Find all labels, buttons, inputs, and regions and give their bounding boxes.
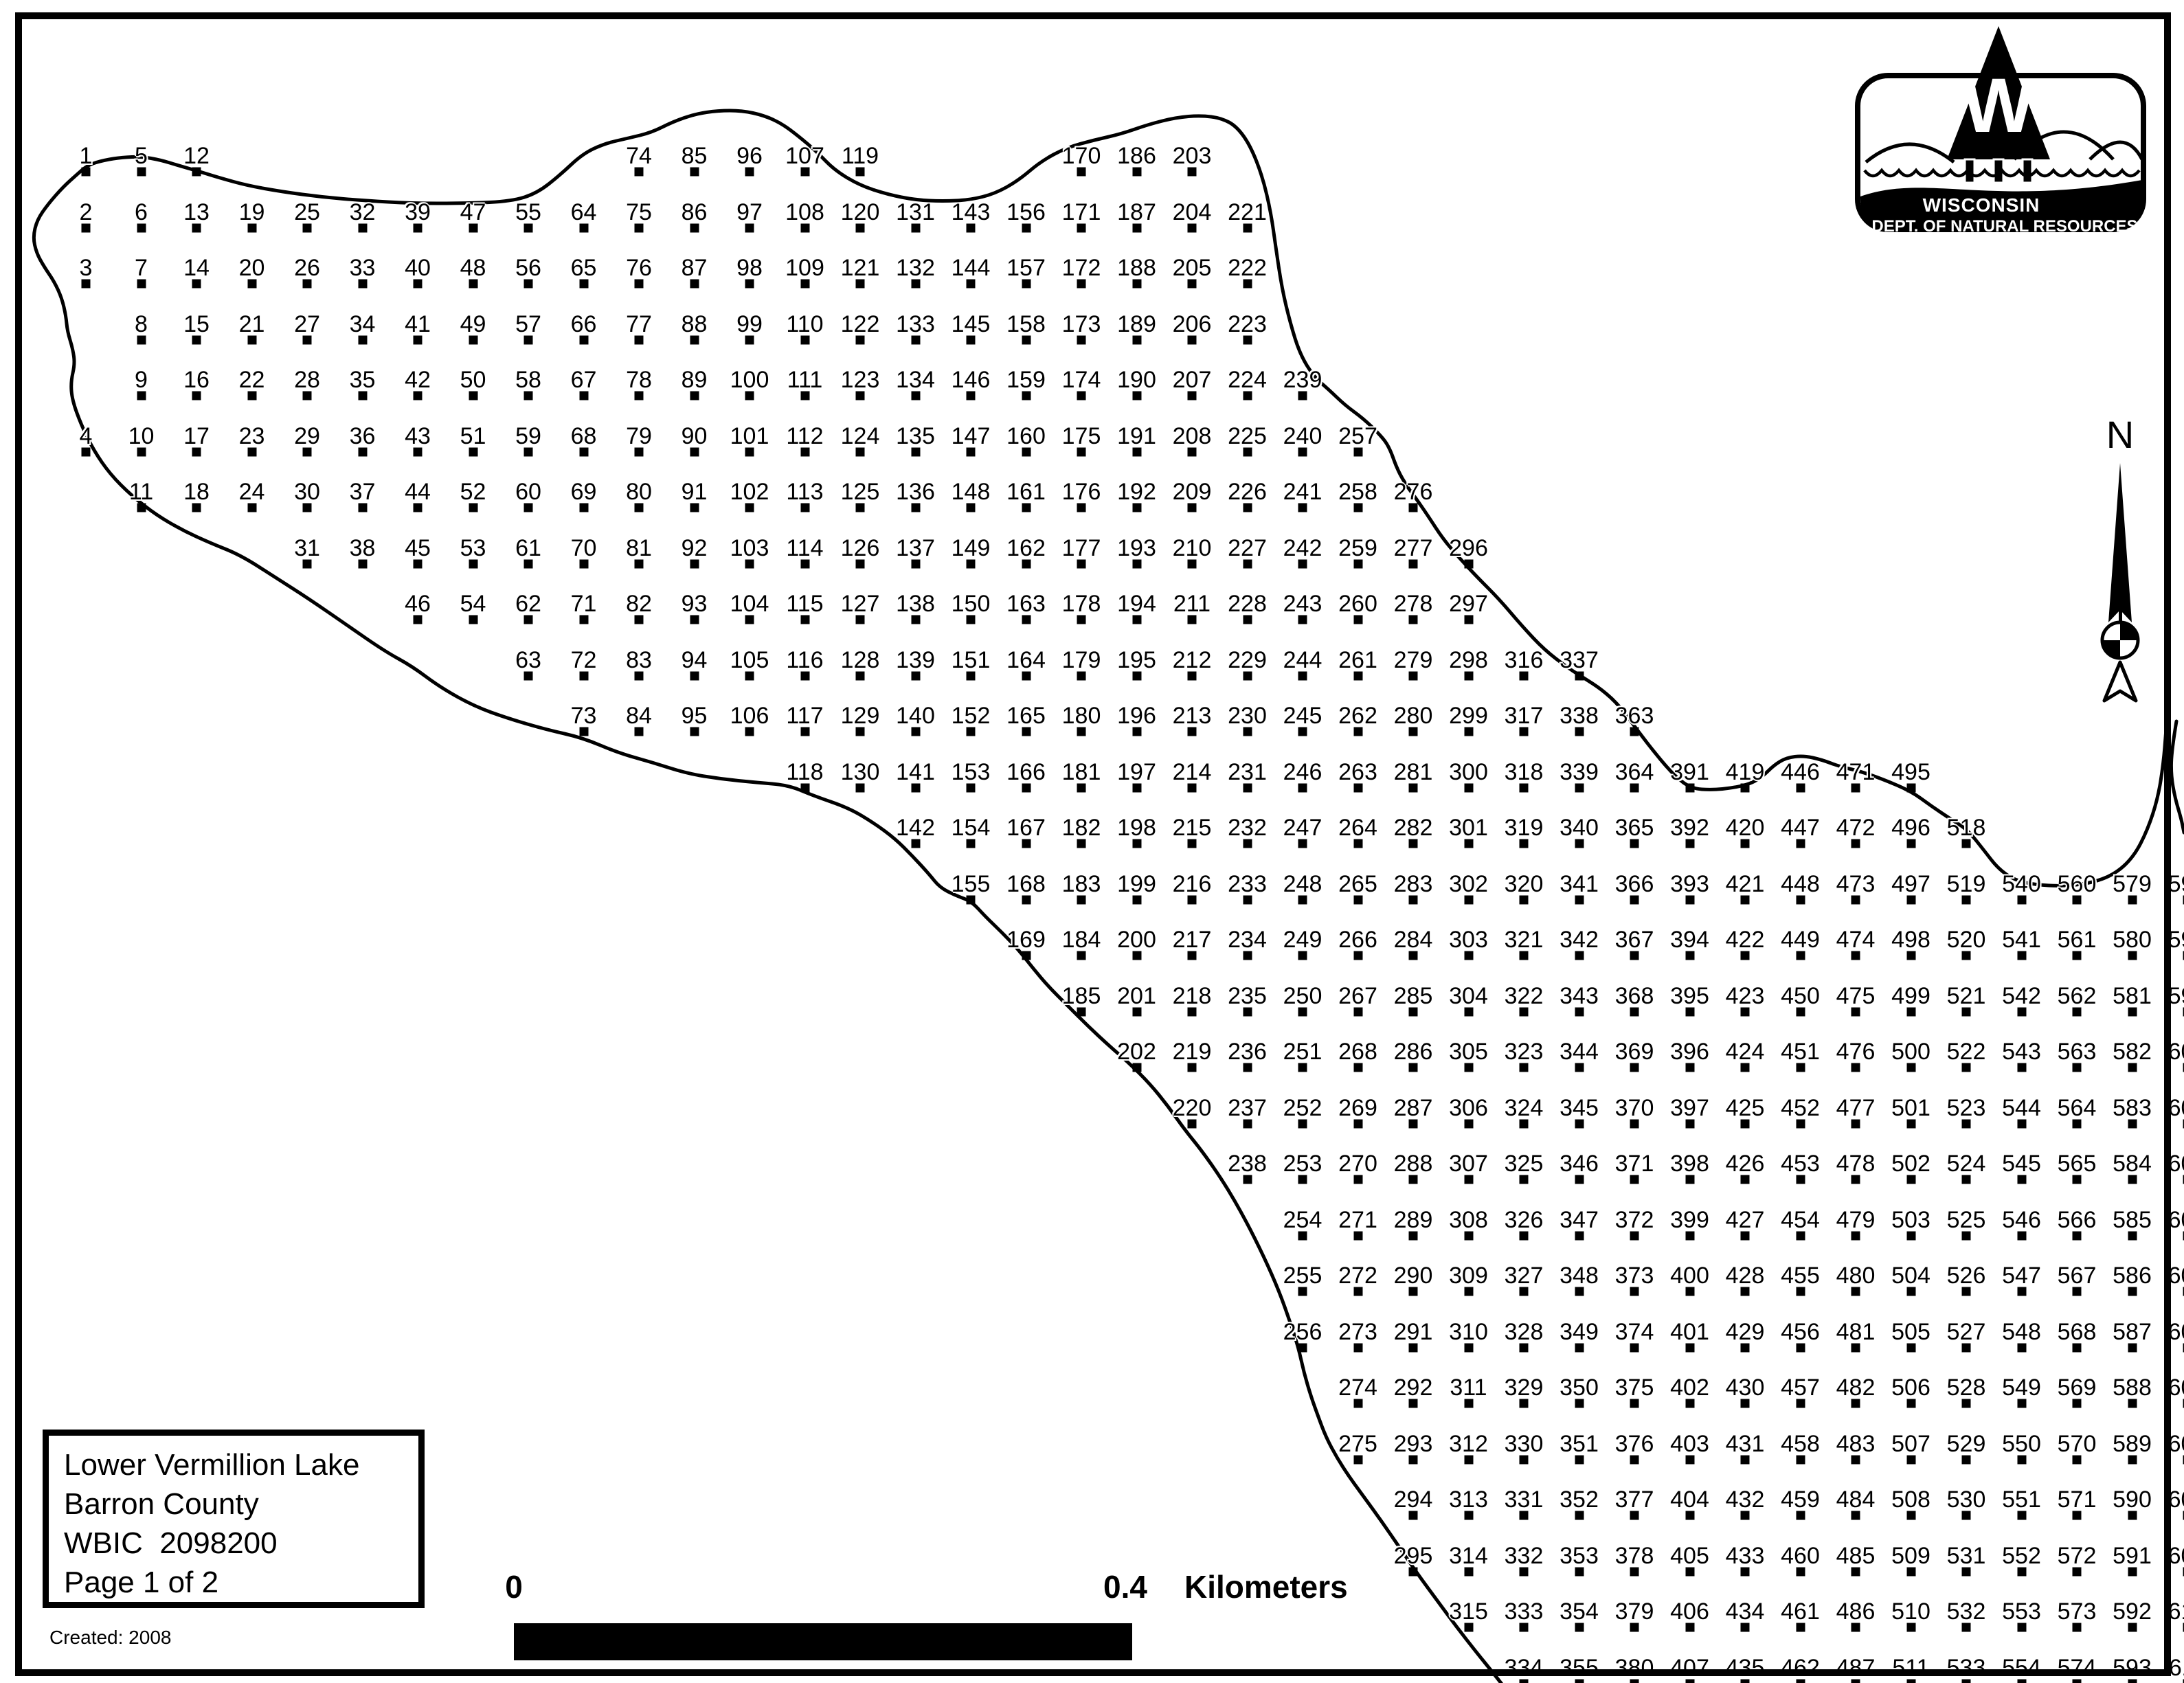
point-label-161: 161 — [1006, 480, 1046, 504]
point-label-30: 30 — [294, 480, 320, 504]
point-label-246: 246 — [1283, 760, 1322, 784]
point-label-292: 292 — [1394, 1376, 1433, 1399]
point-label-242: 242 — [1283, 536, 1322, 560]
county-name: Barron County — [64, 1484, 418, 1524]
point-label-295: 295 — [1394, 1544, 1433, 1568]
point-label-526: 526 — [1947, 1264, 1986, 1287]
point-label-583: 583 — [2113, 1096, 2152, 1120]
point-label-332: 332 — [1505, 1544, 1544, 1568]
point-label-104: 104 — [730, 592, 769, 615]
point-label-146: 146 — [952, 368, 991, 392]
point-label-215: 215 — [1173, 816, 1212, 839]
point-label-105: 105 — [730, 648, 769, 672]
point-label-293: 293 — [1394, 1432, 1433, 1456]
point-label-9: 9 — [135, 368, 148, 392]
point-label-546: 546 — [2002, 1208, 2041, 1232]
point-label-479: 479 — [1836, 1208, 1876, 1232]
point-label-139: 139 — [896, 648, 935, 672]
point-label-196: 196 — [1117, 704, 1156, 727]
point-label-278: 278 — [1394, 592, 1433, 615]
point-label-449: 449 — [1781, 928, 1820, 951]
point-label-477: 477 — [1836, 1096, 1876, 1120]
point-label-310: 310 — [1449, 1320, 1488, 1344]
point-label-177: 177 — [1062, 536, 1101, 560]
point-label-80: 80 — [626, 480, 652, 504]
point-label-79: 79 — [626, 425, 652, 448]
point-label-22: 22 — [239, 368, 265, 392]
point-label-106: 106 — [730, 704, 769, 727]
point-label-87: 87 — [682, 256, 708, 280]
point-label-158: 158 — [1006, 313, 1046, 336]
point-label-211: 211 — [1173, 592, 1211, 615]
point-label-394: 394 — [1670, 928, 1709, 951]
point-label-525: 525 — [1947, 1208, 1986, 1232]
point-label-283: 283 — [1394, 872, 1433, 896]
point-label-224: 224 — [1228, 368, 1267, 392]
point-label-505: 505 — [1891, 1320, 1930, 1344]
point-label-13: 13 — [183, 201, 210, 224]
point-label-66: 66 — [571, 313, 597, 336]
point-label-331: 331 — [1505, 1488, 1544, 1511]
point-label-368: 368 — [1615, 984, 1654, 1008]
point-label-527: 527 — [1947, 1320, 1986, 1344]
point-label-187: 187 — [1117, 201, 1156, 224]
point-label-378: 378 — [1615, 1544, 1654, 1568]
point-label-144: 144 — [952, 256, 991, 280]
point-label-20: 20 — [239, 256, 265, 280]
point-label-149: 149 — [952, 536, 991, 560]
point-label-450: 450 — [1781, 984, 1820, 1008]
point-label-529: 529 — [1947, 1432, 1986, 1456]
point-label-316: 316 — [1505, 648, 1544, 672]
point-label-312: 312 — [1449, 1432, 1488, 1456]
point-label-16: 16 — [183, 368, 210, 392]
point-label-127: 127 — [841, 592, 880, 615]
point-label-431: 431 — [1726, 1432, 1765, 1456]
point-label-230: 230 — [1228, 704, 1267, 727]
point-label-569: 569 — [2058, 1376, 2097, 1399]
point-label-64: 64 — [571, 201, 597, 224]
point-label-565: 565 — [2058, 1152, 2097, 1175]
point-label-184: 184 — [1062, 928, 1101, 951]
point-label-399: 399 — [1670, 1208, 1709, 1232]
point-label-573: 573 — [2058, 1600, 2097, 1623]
point-label-244: 244 — [1283, 648, 1322, 672]
point-label-589: 589 — [2113, 1432, 2152, 1456]
point-label-329: 329 — [1505, 1376, 1544, 1399]
point-label-309: 309 — [1449, 1264, 1488, 1287]
point-label-562: 562 — [2058, 984, 2097, 1008]
point-label-304: 304 — [1449, 984, 1488, 1008]
wisconsin-dnr-logo-icon: W WISCONSIN DEPT. OF NATURAL RESOURCES — [1851, 23, 2150, 235]
point-label-581: 581 — [2113, 984, 2152, 1008]
point-label-291: 291 — [1394, 1320, 1433, 1344]
point-label-243: 243 — [1283, 592, 1322, 615]
point-label-458: 458 — [1781, 1432, 1820, 1456]
point-label-74: 74 — [626, 144, 652, 168]
point-label-133: 133 — [896, 313, 935, 336]
point-label-303: 303 — [1449, 928, 1488, 951]
point-label-191: 191 — [1117, 425, 1156, 448]
point-label-259: 259 — [1338, 536, 1377, 560]
point-label-286: 286 — [1394, 1040, 1433, 1063]
point-label-276: 276 — [1394, 480, 1433, 504]
point-label-94: 94 — [682, 648, 708, 672]
point-label-377: 377 — [1615, 1488, 1654, 1511]
point-label-24: 24 — [239, 480, 265, 504]
point-label-212: 212 — [1173, 648, 1212, 672]
point-label-182: 182 — [1062, 816, 1101, 839]
point-label-326: 326 — [1505, 1208, 1544, 1232]
point-label-544: 544 — [2002, 1096, 2041, 1120]
point-label-4: 4 — [80, 425, 93, 448]
point-label-147: 147 — [952, 425, 991, 448]
point-label-519: 519 — [1947, 872, 1986, 896]
point-label-154: 154 — [952, 816, 991, 839]
point-label-168: 168 — [1006, 872, 1046, 896]
point-label-348: 348 — [1560, 1264, 1599, 1287]
point-label-375: 375 — [1615, 1376, 1654, 1399]
point-label-590: 590 — [2113, 1488, 2152, 1511]
point-label-364: 364 — [1615, 760, 1654, 784]
point-label-452: 452 — [1781, 1096, 1820, 1120]
point-label-198: 198 — [1117, 816, 1156, 839]
point-label-502: 502 — [1891, 1152, 1930, 1175]
point-label-159: 159 — [1006, 368, 1046, 392]
point-label-134: 134 — [896, 368, 935, 392]
point-label-456: 456 — [1781, 1320, 1820, 1344]
point-label-554: 554 — [2002, 1656, 2041, 1680]
point-label-162: 162 — [1006, 536, 1046, 560]
point-label-265: 265 — [1338, 872, 1377, 896]
point-label-120: 120 — [841, 201, 880, 224]
point-label-323: 323 — [1505, 1040, 1544, 1063]
point-label-604: 604 — [2168, 1264, 2184, 1287]
point-label-90: 90 — [682, 425, 708, 448]
logo-wisconsin-text: WISCONSIN — [1923, 194, 2040, 216]
point-label-341: 341 — [1560, 872, 1599, 896]
point-label-610: 610 — [2168, 1600, 2184, 1623]
point-label-549: 549 — [2002, 1376, 2041, 1399]
point-label-264: 264 — [1338, 816, 1377, 839]
point-label-379: 379 — [1615, 1600, 1654, 1623]
point-label-571: 571 — [2058, 1488, 2097, 1511]
point-label-511: 511 — [1892, 1656, 1929, 1680]
point-label-424: 424 — [1726, 1040, 1765, 1063]
point-label-572: 572 — [2058, 1544, 2097, 1568]
point-label-3: 3 — [80, 256, 93, 280]
point-label-95: 95 — [682, 704, 708, 727]
point-label-42: 42 — [405, 368, 431, 392]
point-label-608: 608 — [2168, 1488, 2184, 1511]
point-label-179: 179 — [1062, 648, 1101, 672]
point-label-151: 151 — [952, 648, 991, 672]
point-label-297: 297 — [1449, 592, 1488, 615]
point-label-322: 322 — [1505, 984, 1544, 1008]
point-label-6: 6 — [135, 201, 148, 224]
point-label-143: 143 — [952, 201, 991, 224]
point-label-37: 37 — [350, 480, 376, 504]
point-label-132: 132 — [896, 256, 935, 280]
point-label-10: 10 — [128, 425, 155, 448]
point-label-344: 344 — [1560, 1040, 1599, 1063]
point-label-328: 328 — [1505, 1320, 1544, 1344]
point-label-423: 423 — [1726, 984, 1765, 1008]
point-label-110: 110 — [786, 313, 823, 336]
point-label-88: 88 — [682, 313, 708, 336]
point-label-600: 600 — [2168, 1040, 2184, 1063]
point-label-407: 407 — [1670, 1656, 1709, 1680]
point-label-510: 510 — [1891, 1600, 1930, 1623]
point-label-192: 192 — [1117, 480, 1156, 504]
point-label-506: 506 — [1891, 1376, 1930, 1399]
point-label-311: 311 — [1450, 1376, 1487, 1399]
point-label-101: 101 — [730, 425, 769, 448]
point-label-188: 188 — [1117, 256, 1156, 280]
point-label-391: 391 — [1670, 760, 1709, 784]
point-label-124: 124 — [841, 425, 880, 448]
point-label-128: 128 — [841, 648, 880, 672]
point-label-190: 190 — [1117, 368, 1156, 392]
point-label-100: 100 — [730, 368, 769, 392]
point-label-363: 363 — [1615, 704, 1654, 727]
point-label-330: 330 — [1505, 1432, 1544, 1456]
point-label-262: 262 — [1338, 704, 1377, 727]
point-label-267: 267 — [1338, 984, 1377, 1008]
point-label-321: 321 — [1505, 928, 1544, 951]
point-label-427: 427 — [1726, 1208, 1765, 1232]
scale-unit-label: Kilometers — [1184, 1568, 1348, 1605]
point-label-508: 508 — [1891, 1488, 1930, 1511]
point-label-54: 54 — [460, 592, 486, 615]
point-label-135: 135 — [896, 425, 935, 448]
point-label-296: 296 — [1449, 536, 1488, 560]
scale-bar — [514, 1623, 1132, 1660]
point-label-126: 126 — [841, 536, 880, 560]
point-label-203: 203 — [1173, 144, 1212, 168]
point-label-305: 305 — [1449, 1040, 1488, 1063]
point-label-611: 611 — [2169, 1656, 2184, 1680]
point-label-40: 40 — [405, 256, 431, 280]
point-label-327: 327 — [1505, 1264, 1544, 1287]
point-label-245: 245 — [1283, 704, 1322, 727]
point-label-15: 15 — [183, 313, 210, 336]
point-label-599: 599 — [2168, 984, 2184, 1008]
point-label-176: 176 — [1062, 480, 1101, 504]
point-label-225: 225 — [1228, 425, 1267, 448]
point-label-166: 166 — [1006, 760, 1046, 784]
point-label-28: 28 — [294, 368, 320, 392]
point-label-587: 587 — [2113, 1320, 2152, 1344]
wbic-code: WBIC 2098200 — [64, 1524, 418, 1563]
point-label-39: 39 — [405, 201, 431, 224]
point-label-318: 318 — [1505, 760, 1544, 784]
point-label-220: 220 — [1173, 1096, 1212, 1120]
point-label-219: 219 — [1173, 1040, 1212, 1063]
point-label-279: 279 — [1394, 648, 1433, 672]
point-label-167: 167 — [1006, 816, 1046, 839]
point-label-169: 169 — [1006, 928, 1046, 951]
point-label-540: 540 — [2002, 872, 2041, 896]
point-label-186: 186 — [1117, 144, 1156, 168]
point-label-233: 233 — [1228, 872, 1267, 896]
point-label-370: 370 — [1615, 1096, 1654, 1120]
point-label-355: 355 — [1560, 1656, 1599, 1680]
point-label-155: 155 — [952, 872, 991, 896]
point-label-195: 195 — [1117, 648, 1156, 672]
point-label-129: 129 — [841, 704, 880, 727]
title-box: Lower Vermillion Lake Barron County WBIC… — [43, 1430, 425, 1608]
point-label-584: 584 — [2113, 1152, 2152, 1175]
point-label-2: 2 — [80, 201, 93, 224]
point-label-52: 52 — [460, 480, 486, 504]
point-label-152: 152 — [952, 704, 991, 727]
point-label-81: 81 — [626, 536, 652, 560]
point-label-294: 294 — [1394, 1488, 1433, 1511]
point-label-524: 524 — [1947, 1152, 1986, 1175]
logo-dept-text: DEPT. OF NATURAL RESOURCES — [1871, 217, 2137, 235]
point-label-597: 597 — [2168, 872, 2184, 896]
point-label-374: 374 — [1615, 1320, 1654, 1344]
point-label-57: 57 — [515, 313, 541, 336]
point-label-255: 255 — [1283, 1264, 1322, 1287]
point-label-472: 472 — [1836, 816, 1876, 839]
point-label-334: 334 — [1505, 1656, 1544, 1680]
point-label-58: 58 — [515, 368, 541, 392]
point-label-138: 138 — [896, 592, 935, 615]
point-label-307: 307 — [1449, 1152, 1488, 1175]
point-label-460: 460 — [1781, 1544, 1820, 1568]
point-label-221: 221 — [1228, 201, 1267, 224]
point-label-131: 131 — [896, 201, 935, 224]
point-label-532: 532 — [1947, 1600, 1986, 1623]
point-label-315: 315 — [1449, 1600, 1488, 1623]
point-label-239: 239 — [1283, 368, 1322, 392]
point-label-8: 8 — [135, 313, 148, 336]
point-label-226: 226 — [1228, 480, 1267, 504]
point-label-36: 36 — [350, 425, 376, 448]
point-label-232: 232 — [1228, 816, 1267, 839]
point-label-86: 86 — [682, 201, 708, 224]
point-label-501: 501 — [1891, 1096, 1930, 1120]
point-label-249: 249 — [1283, 928, 1322, 951]
point-label-277: 277 — [1394, 536, 1433, 560]
map-page: 1234567891011121314151617181920212223242… — [0, 0, 2184, 1683]
point-label-241: 241 — [1283, 480, 1322, 504]
point-label-214: 214 — [1173, 760, 1212, 784]
point-label-213: 213 — [1173, 704, 1212, 727]
point-label-351: 351 — [1560, 1432, 1599, 1456]
point-label-114: 114 — [786, 536, 823, 560]
point-label-480: 480 — [1836, 1264, 1876, 1287]
point-label-208: 208 — [1173, 425, 1212, 448]
point-label-497: 497 — [1891, 872, 1930, 896]
point-label-14: 14 — [183, 256, 210, 280]
point-label-33: 33 — [350, 256, 376, 280]
point-label-35: 35 — [350, 368, 376, 392]
point-label-185: 185 — [1062, 984, 1101, 1008]
point-label-11: 11 — [129, 480, 153, 504]
point-label-27: 27 — [294, 313, 320, 336]
point-label-174: 174 — [1062, 368, 1101, 392]
point-label-299: 299 — [1449, 704, 1488, 727]
point-label-113: 113 — [786, 480, 823, 504]
point-label-44: 44 — [405, 480, 431, 504]
point-label-148: 148 — [952, 480, 991, 504]
point-label-603: 603 — [2168, 1208, 2184, 1232]
point-label-521: 521 — [1947, 984, 1986, 1008]
point-label-181: 181 — [1062, 760, 1101, 784]
point-label-202: 202 — [1117, 1040, 1156, 1063]
point-label-548: 548 — [2002, 1320, 2041, 1344]
point-label-365: 365 — [1615, 816, 1654, 839]
point-label-306: 306 — [1449, 1096, 1488, 1120]
point-label-289: 289 — [1394, 1208, 1433, 1232]
point-label-396: 396 — [1670, 1040, 1709, 1063]
point-label-1: 1 — [80, 144, 93, 168]
point-label-543: 543 — [2002, 1040, 2041, 1063]
point-label-53: 53 — [460, 536, 486, 560]
point-label-405: 405 — [1670, 1544, 1709, 1568]
point-label-338: 338 — [1560, 704, 1599, 727]
point-label-518: 518 — [1947, 816, 1986, 839]
point-label-591: 591 — [2113, 1544, 2152, 1568]
point-label-119: 119 — [842, 144, 879, 168]
point-label-337: 337 — [1560, 648, 1599, 672]
point-label-509: 509 — [1891, 1544, 1930, 1568]
point-label-34: 34 — [350, 313, 376, 336]
point-label-183: 183 — [1062, 872, 1101, 896]
point-label-504: 504 — [1891, 1264, 1930, 1287]
point-label-199: 199 — [1117, 872, 1156, 896]
point-label-372: 372 — [1615, 1208, 1654, 1232]
point-label-406: 406 — [1670, 1600, 1709, 1623]
point-label-545: 545 — [2002, 1152, 2041, 1175]
point-label-485: 485 — [1836, 1544, 1876, 1568]
point-label-47: 47 — [460, 201, 486, 224]
point-label-371: 371 — [1615, 1152, 1654, 1175]
north-label: N — [2106, 413, 2134, 456]
point-label-205: 205 — [1173, 256, 1212, 280]
scale-max-label: 0.4 — [1103, 1568, 1147, 1605]
point-label-302: 302 — [1449, 872, 1488, 896]
point-label-541: 541 — [2002, 928, 2041, 951]
point-label-108: 108 — [785, 201, 824, 224]
point-label-252: 252 — [1283, 1096, 1322, 1120]
point-label-487: 487 — [1836, 1656, 1876, 1680]
point-label-141: 141 — [896, 760, 935, 784]
point-label-209: 209 — [1173, 480, 1212, 504]
point-label-342: 342 — [1560, 928, 1599, 951]
point-label-553: 553 — [2002, 1600, 2041, 1623]
point-label-606: 606 — [2168, 1376, 2184, 1399]
point-label-258: 258 — [1338, 480, 1377, 504]
point-label-201: 201 — [1117, 984, 1156, 1008]
point-label-432: 432 — [1726, 1488, 1765, 1511]
point-label-376: 376 — [1615, 1432, 1654, 1456]
point-label-156: 156 — [1006, 201, 1046, 224]
point-label-217: 217 — [1173, 928, 1212, 951]
point-label-290: 290 — [1394, 1264, 1433, 1287]
point-label-367: 367 — [1615, 928, 1654, 951]
point-label-73: 73 — [571, 704, 597, 727]
point-label-115: 115 — [786, 592, 823, 615]
point-label-373: 373 — [1615, 1264, 1654, 1287]
point-label-551: 551 — [2002, 1488, 2041, 1511]
point-label-564: 564 — [2058, 1096, 2097, 1120]
point-label-48: 48 — [460, 256, 486, 280]
point-label-150: 150 — [952, 592, 991, 615]
